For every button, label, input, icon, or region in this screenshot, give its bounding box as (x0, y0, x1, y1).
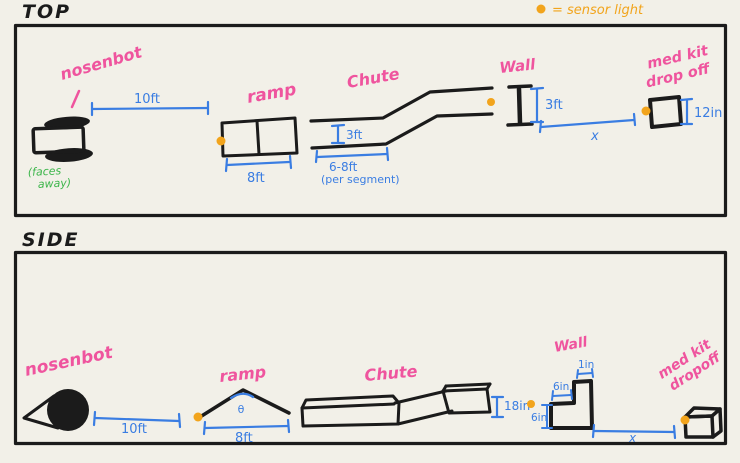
top-dim-10ft-label: 10ft (134, 92, 160, 107)
top-dim-per-segment-label: (per segment) (321, 173, 400, 186)
faces-away-note: (faces away) (27, 164, 71, 191)
top-wall-label: Wall (499, 55, 537, 77)
top-dim-8ft-label: 8ft (247, 171, 265, 186)
top-view: nosenbot (faces away) 10ft ramp 8ft Chut… (27, 42, 722, 191)
side-dim-1in-label: 1in (578, 359, 594, 371)
robot-wheel-side (47, 389, 89, 431)
side-view: nosenbot 10ft ramp θ 8ft Chute (23, 334, 725, 446)
top-medkit-label: med kit drop off (640, 43, 714, 92)
side-wall-label: Wall (553, 334, 589, 356)
sensor-light-ramp-top-icon (217, 137, 226, 146)
top-ramp-label: ramp (245, 80, 297, 108)
side-dim-10ft-label: 10ft (121, 422, 147, 437)
side-dim-theta-label: θ (238, 403, 245, 416)
ramp-midline (257, 121, 259, 154)
top-dim-6-8ft-label: 6-8ft (329, 160, 358, 174)
side-chute-label: Chute (364, 361, 419, 385)
top-nosenbot-pointer (72, 91, 79, 107)
side-dim-8ft-label: 8ft (235, 431, 253, 446)
top-title: TOP (22, 1, 71, 23)
chute-incline-bottom (398, 411, 452, 424)
chute-slab-left-edge (302, 404, 394, 408)
top-nosenbot-label: nosenbot (58, 42, 146, 84)
legend: = sensor light (537, 3, 644, 18)
top-dim-3ft-wall-label: 3ft (545, 98, 563, 113)
wall-serif-bottom (508, 124, 532, 125)
sensor-light-ramp-side-icon (194, 413, 203, 422)
wall-stem (519, 89, 520, 123)
sensor-light-legend-dot-icon (537, 5, 546, 14)
side-nosenbot-label: nosenbot (23, 343, 116, 381)
sketch-svg: TOP = sensor light SIDE nosenbot (faces … (0, 0, 740, 463)
side-dim-18in-line (492, 397, 503, 417)
side-chute (302, 384, 490, 426)
top-chute-label: Chute (345, 64, 401, 92)
sensor-light-medkit-side-icon (681, 416, 690, 425)
top-dim-12in-label: 12in (694, 106, 722, 121)
legend-label: = sensor light (552, 3, 644, 18)
top-ramp (217, 118, 298, 156)
wall-serif-top (509, 86, 531, 87)
side-robot (24, 389, 89, 431)
side-dim-18in-label: 18in (504, 399, 530, 413)
side-dim-6in-height-label: 6in (531, 412, 547, 424)
faces-away-line2: away) (37, 176, 71, 191)
side-view-panel (16, 253, 726, 444)
sensor-light-medkit-top-icon (642, 107, 651, 116)
top-medkit-box (650, 97, 681, 127)
top-robot (33, 115, 93, 164)
top-dim-3ft-chute-line (332, 125, 344, 143)
robot-wheel-bottom (45, 147, 94, 164)
side-title: SIDE (22, 229, 80, 251)
side-medkit-cube (685, 408, 721, 437)
side-dim-6in-width-label: 6in (553, 381, 569, 393)
top-dim-3ft-chute-label: 3ft (346, 128, 363, 142)
top-dim-3ft-wall-line (531, 88, 543, 122)
top-dim-8ft-line (226, 156, 291, 171)
sensor-light-wall-side-icon (527, 400, 535, 408)
side-dim-x-label: x (628, 431, 637, 445)
side-ramp-label: ramp (218, 362, 267, 386)
chute-slab-right-back (446, 384, 490, 386)
whiteboard-sketch: TOP = sensor light SIDE nosenbot (faces … (0, 0, 740, 463)
chute-incline-top (395, 391, 446, 403)
cube-top (685, 408, 720, 417)
sensor-light-chute-exit-icon (487, 98, 495, 106)
side-medkit-label: med kit dropoff (655, 335, 725, 396)
top-dim-x-label: x (590, 129, 599, 144)
chute-slab-right (443, 389, 490, 413)
chute-slab-left (302, 396, 399, 426)
top-dim-x-line (540, 114, 635, 132)
top-wall (508, 86, 532, 125)
